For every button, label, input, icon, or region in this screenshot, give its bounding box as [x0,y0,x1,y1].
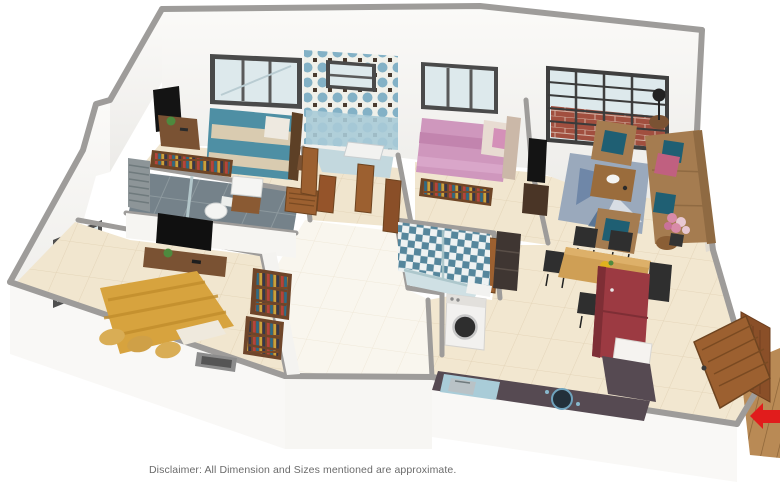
dining-chair [647,262,672,302]
wall-tv [527,138,547,183]
study-desk [158,115,200,150]
bookshelf-lower [243,316,284,360]
hall-front-wall-face [285,377,432,449]
bathroom2-window [326,60,376,92]
pink-bed [416,116,521,182]
dark-cabinet [493,231,521,291]
bathroom2-mosaic-wall [304,50,398,160]
utility-area [445,294,486,350]
table-lamp [653,89,666,102]
white-bowl [607,175,620,184]
desk-plant [167,117,176,126]
armchair-north [591,120,637,166]
master-bedroom-window [210,54,302,109]
plant-pot [669,233,684,247]
bedroom2-window [421,62,498,114]
disclaimer-text: Disclaimer: All Dimension and Sizes ment… [149,464,456,476]
console-plant [164,249,173,258]
teal-cushion [653,192,676,215]
hall-south-wall-top [285,376,432,377]
door-leaf [317,175,336,213]
coffee-table [590,164,636,202]
vanity-cabinet [231,195,261,214]
bookshelf-upper [250,268,292,320]
floor-plan-render: Disclaimer: All Dimension and Sizes ment… [0,0,780,490]
door-leaf [301,147,318,196]
pink-cushion [654,153,680,177]
washing-machine [445,294,486,350]
tv-cabinet [522,183,549,216]
bed-pillows [264,116,290,140]
floor-plan-canvas [0,0,780,490]
door-handle [702,366,707,371]
door-leaf [355,164,374,213]
